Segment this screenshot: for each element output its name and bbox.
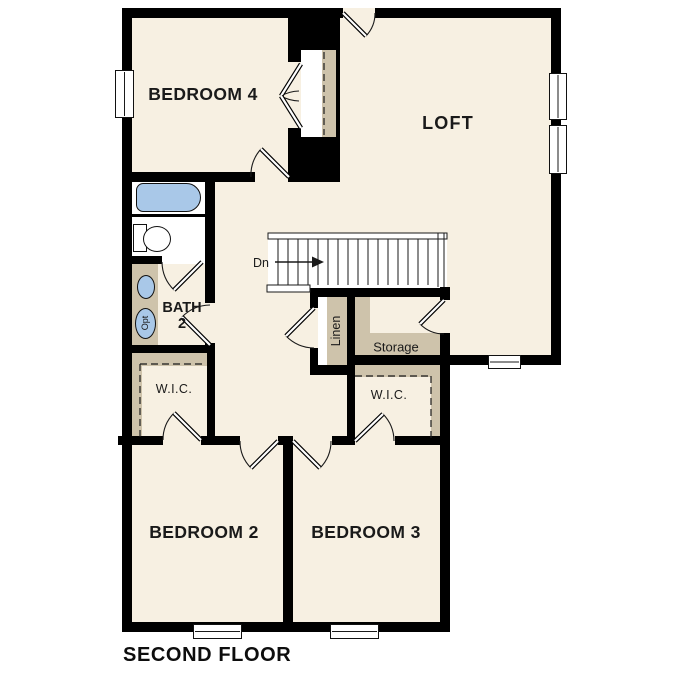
door-bath-inner: [162, 262, 202, 290]
stair-rail-top: [268, 233, 447, 239]
stair-rail-bottom: [267, 285, 310, 292]
room-label-bedroom2: BEDROOM 2: [149, 523, 259, 543]
window-mullions: [125, 72, 559, 632]
room-label-storage: Storage: [373, 341, 419, 356]
door-bedroom4: [251, 149, 289, 177]
door-bedroom2: [240, 441, 278, 468]
page-title: SECOND FLOOR: [123, 644, 291, 667]
door-storage: [420, 300, 444, 334]
door-linen: [286, 308, 314, 348]
stair-treads: [278, 233, 444, 287]
stairs-down-label: Dn: [253, 256, 269, 270]
room-label-bath-line2: 2: [162, 316, 201, 332]
room-label-linen: Linen: [329, 316, 343, 347]
room-label-loft: LOFT: [422, 113, 474, 133]
room-label-wic-right: W.I.C.: [371, 388, 407, 402]
door-wic-left: [163, 413, 201, 440]
door-wic-right: [355, 414, 394, 441]
floor-plan-linework: [0, 0, 687, 687]
room-label-bedroom4: BEDROOM 4: [148, 85, 258, 105]
door-loft-corner: [343, 13, 375, 36]
floor-plan: BEDROOM 4 LOFT BATH 2 W.I.C. W.I.C. BEDR…: [0, 0, 687, 687]
room-label-bath: BATH 2: [162, 300, 201, 332]
room-label-bath-line1: BATH: [162, 300, 201, 316]
door-bedroom4-closet: [281, 64, 301, 128]
door-bedroom3: [293, 441, 331, 468]
room-label-bedroom3: BEDROOM 3: [311, 523, 421, 543]
room-label-wic-left: W.I.C.: [156, 382, 192, 396]
optional-sink-label: Opt: [140, 316, 150, 331]
staircase: [267, 233, 447, 292]
